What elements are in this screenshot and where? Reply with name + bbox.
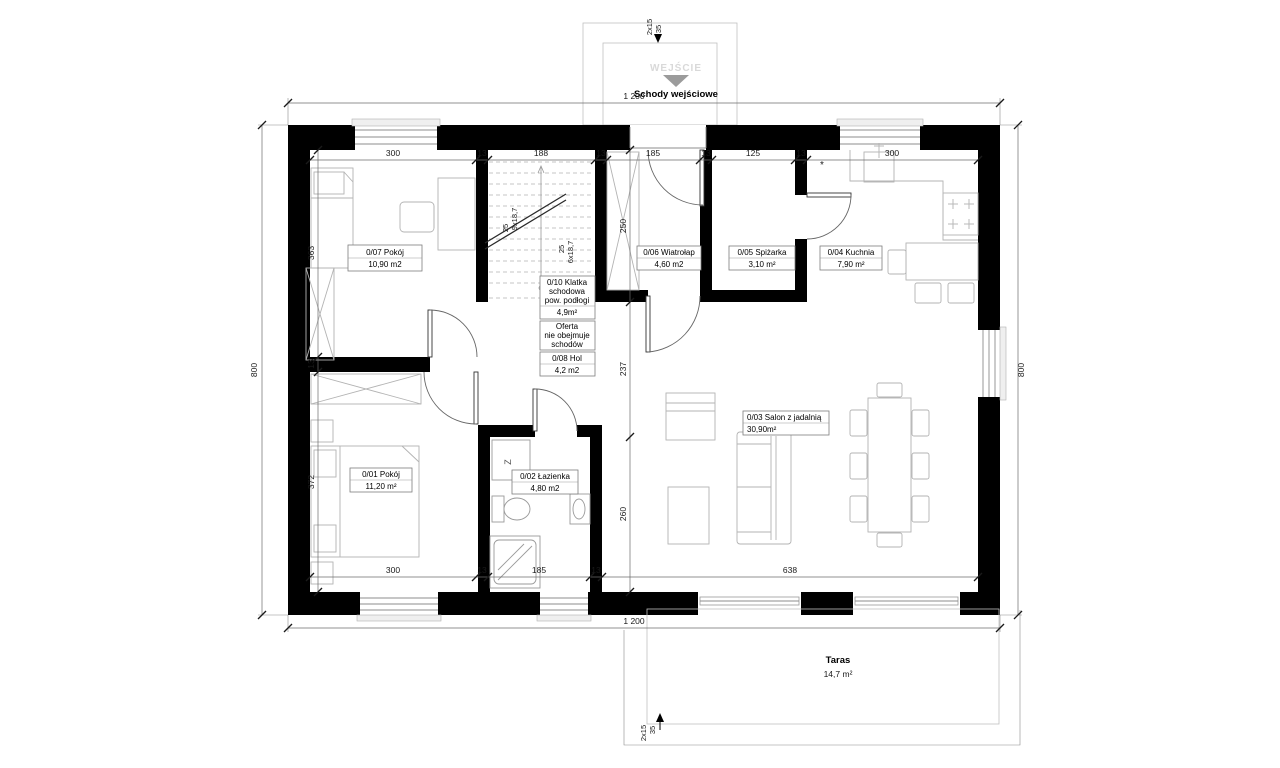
terrace-steps-rise: 35	[648, 726, 657, 734]
room01-area: 11,20 m²	[366, 482, 397, 491]
dim-bottom-3: 185	[532, 565, 546, 575]
entrance-steps-rise: 35	[654, 25, 663, 33]
tv-cabinet	[666, 393, 715, 440]
bed-single	[311, 168, 353, 268]
terrace: Taras 14,7 m² 2x15 35	[624, 609, 1020, 745]
entrance-title: Schody wejściowe	[634, 89, 718, 100]
terrace-name: Taras	[826, 655, 851, 666]
window-bathroom	[537, 592, 591, 621]
desk-chair	[400, 202, 434, 232]
dim-overall-height-left: 800	[249, 363, 259, 377]
dim-left-2: 13	[306, 359, 316, 369]
stairs-note-1: Oferta	[556, 322, 579, 331]
kitchen-chair-left	[888, 250, 906, 274]
door-bathroom	[533, 389, 577, 431]
dim-overall-height-right: 800	[1016, 363, 1026, 377]
kitchen-table	[906, 243, 978, 280]
staircase-name-1: 0/10 Klatka	[547, 278, 588, 287]
door-wiatrolap-salon	[646, 296, 700, 352]
terrace-door-2	[853, 592, 960, 615]
bathroom-area: 4,80 m2	[531, 484, 560, 493]
stair-flight-upper-width: 25	[501, 224, 510, 232]
bed-double	[311, 446, 419, 557]
entrance-inner-outline	[603, 43, 717, 125]
dimension-center-interior: 250 237 260	[618, 146, 634, 596]
door-bedroom01	[424, 372, 478, 424]
sofa	[737, 432, 791, 544]
wiatrolap-area: 4,60 m2	[655, 260, 684, 269]
label-stairs-note: Oferta nie obejmuje schodów	[540, 321, 595, 350]
dim-top-9: 300	[885, 148, 899, 158]
pillow	[314, 172, 344, 194]
terrace-steps-arrow-icon	[656, 713, 664, 722]
door-spizarka	[807, 193, 851, 239]
dim-overall-width-top: 1 200	[623, 91, 645, 101]
dim-kitchen-asterisk: *	[820, 160, 824, 171]
label-staircase: 0/10 Klatka schodowa pow. podłogi 4,9m²	[540, 276, 595, 319]
kitchen-name: 0/04 Kuchnia	[828, 248, 875, 257]
kitchen-area: 7,90 m²	[837, 260, 864, 269]
stair-break-line	[485, 200, 566, 249]
kitchen-counter	[850, 150, 978, 240]
entrance-direction-triangle-icon	[663, 75, 689, 87]
dim-overall-width-bottom: 1 200	[623, 616, 645, 626]
bathroom-sink	[570, 494, 590, 524]
dim-bottom-5: 638	[783, 565, 797, 575]
shower	[490, 536, 540, 588]
dimension-top-interior: 300 13 188 13 185 13 125 13 300 *	[306, 148, 982, 171]
dim-bottom-4: 13	[591, 565, 601, 575]
wardrobe07	[306, 268, 334, 360]
pillow-1	[314, 450, 336, 477]
stair-flight-lower-width: 25	[557, 245, 566, 253]
kitchen-chair-1	[915, 283, 941, 303]
nightstand-2	[311, 562, 333, 584]
terrace-steps-count: 2x15	[639, 725, 648, 741]
nightstand-1	[311, 420, 333, 442]
dim-center-2: 237	[618, 362, 628, 376]
staircase-name-2: schodowa	[549, 287, 586, 296]
entrance-label: WEJŚCIE	[650, 61, 702, 74]
room07-name: 0/07 Pokój	[366, 248, 404, 257]
label-room07: 0/07 Pokój 10,90 m2	[348, 245, 422, 271]
window-bedroom01	[357, 592, 441, 621]
washing-machine-symbol: Z	[503, 459, 513, 465]
label-wiatrolap: 0/06 Wiatrołap 4,60 m2	[637, 246, 701, 270]
terrace-outline	[647, 609, 999, 724]
label-bathroom: 0/02 Łazienka 4,80 m2	[512, 470, 578, 494]
livingroom-area: 30,90m²	[747, 425, 777, 434]
hall-name: 0/08 Hol	[552, 354, 582, 363]
window-bedroom07	[352, 119, 440, 150]
dim-left-3: 372	[306, 475, 316, 489]
label-kitchen: 0/04 Kuchnia 7,90 m²	[820, 246, 882, 270]
dim-top-7: 125	[746, 148, 760, 158]
entrance-steps-count: 2x15	[645, 19, 654, 35]
pillow-2	[314, 525, 336, 552]
floor-plan: 2x15 35 WEJŚCIE Schody wejściowe	[0, 0, 1280, 768]
stairs-note-3: schodów	[551, 340, 583, 349]
entrance-stairs: 2x15 35 WEJŚCIE Schody wejściowe	[583, 19, 737, 125]
dim-top-2: 13	[477, 148, 487, 158]
stair-flight-upper-spec: 9x18,7	[510, 208, 519, 231]
entry-door	[648, 150, 704, 206]
hall-area: 4,2 m2	[555, 366, 580, 375]
stove	[943, 193, 978, 235]
dim-center-3: 260	[618, 507, 628, 521]
furniture-kitchen	[850, 143, 978, 303]
dim-top-4: 13	[596, 148, 606, 158]
wiatrolap-name: 0/06 Wiatrołap	[643, 248, 695, 257]
stair-flight-lower-spec: 6x18,7	[566, 241, 575, 264]
kitchen-chair-2	[948, 283, 974, 303]
label-hall: 0/08 Hol 4,2 m2	[540, 352, 595, 376]
dim-top-6: 13	[701, 148, 711, 158]
dining-table	[868, 398, 911, 532]
stairs-note-2: nie obejmuje	[544, 331, 590, 340]
livingroom-name: 0/03 Salon z jadalnią	[747, 413, 822, 422]
spizarka-area: 3,10 m²	[748, 260, 775, 269]
entry-door-opening	[630, 125, 706, 150]
label-livingroom: 0/03 Salon z jadalnią 30,90m²	[743, 411, 829, 435]
dim-bottom-1: 300	[386, 565, 400, 575]
room01-name: 0/01 Pokój	[362, 470, 400, 479]
label-spizarka: 0/05 Spiżarka 3,10 m²	[729, 246, 795, 270]
room07-area: 10,90 m2	[368, 260, 402, 269]
dim-bottom-2: 13	[477, 565, 487, 575]
staircase-name-3: pow. podłogi	[545, 296, 590, 305]
window-kitchen	[837, 119, 923, 150]
terrace-area: 14,7 m²	[824, 669, 853, 679]
dim-top-5: 185	[646, 148, 660, 158]
dim-left-1: 363	[306, 246, 316, 260]
dim-center-1: 250	[618, 219, 628, 233]
entrance-steps-arrow-icon	[654, 34, 662, 43]
spizarka-name: 0/05 Spiżarka	[738, 248, 787, 257]
wardrobe01	[311, 374, 421, 404]
terrace-door-1	[698, 592, 801, 615]
dim-top-8: 13	[796, 148, 806, 158]
furniture-livingroom	[666, 383, 929, 547]
windows	[352, 119, 1006, 621]
coffee-table	[668, 487, 709, 544]
bathroom-name: 0/02 Łazienka	[520, 472, 570, 481]
dimension-bottom-interior: 300 13 185 13 638	[306, 565, 982, 581]
desk	[438, 178, 475, 250]
dim-top-3: 188	[534, 148, 548, 158]
window-livingroom-east	[978, 327, 1006, 400]
staircase-area: 4,9m²	[557, 308, 578, 317]
dimension-left-outer: 800	[249, 121, 288, 619]
toilet	[492, 496, 530, 522]
dim-top-1: 300	[386, 148, 400, 158]
dining-set	[850, 383, 929, 547]
terrace-boundary	[624, 610, 1020, 745]
door-bedroom07	[428, 310, 477, 357]
label-room01: 0/01 Pokój 11,20 m²	[350, 468, 412, 492]
stair-break-line-2	[485, 194, 566, 243]
